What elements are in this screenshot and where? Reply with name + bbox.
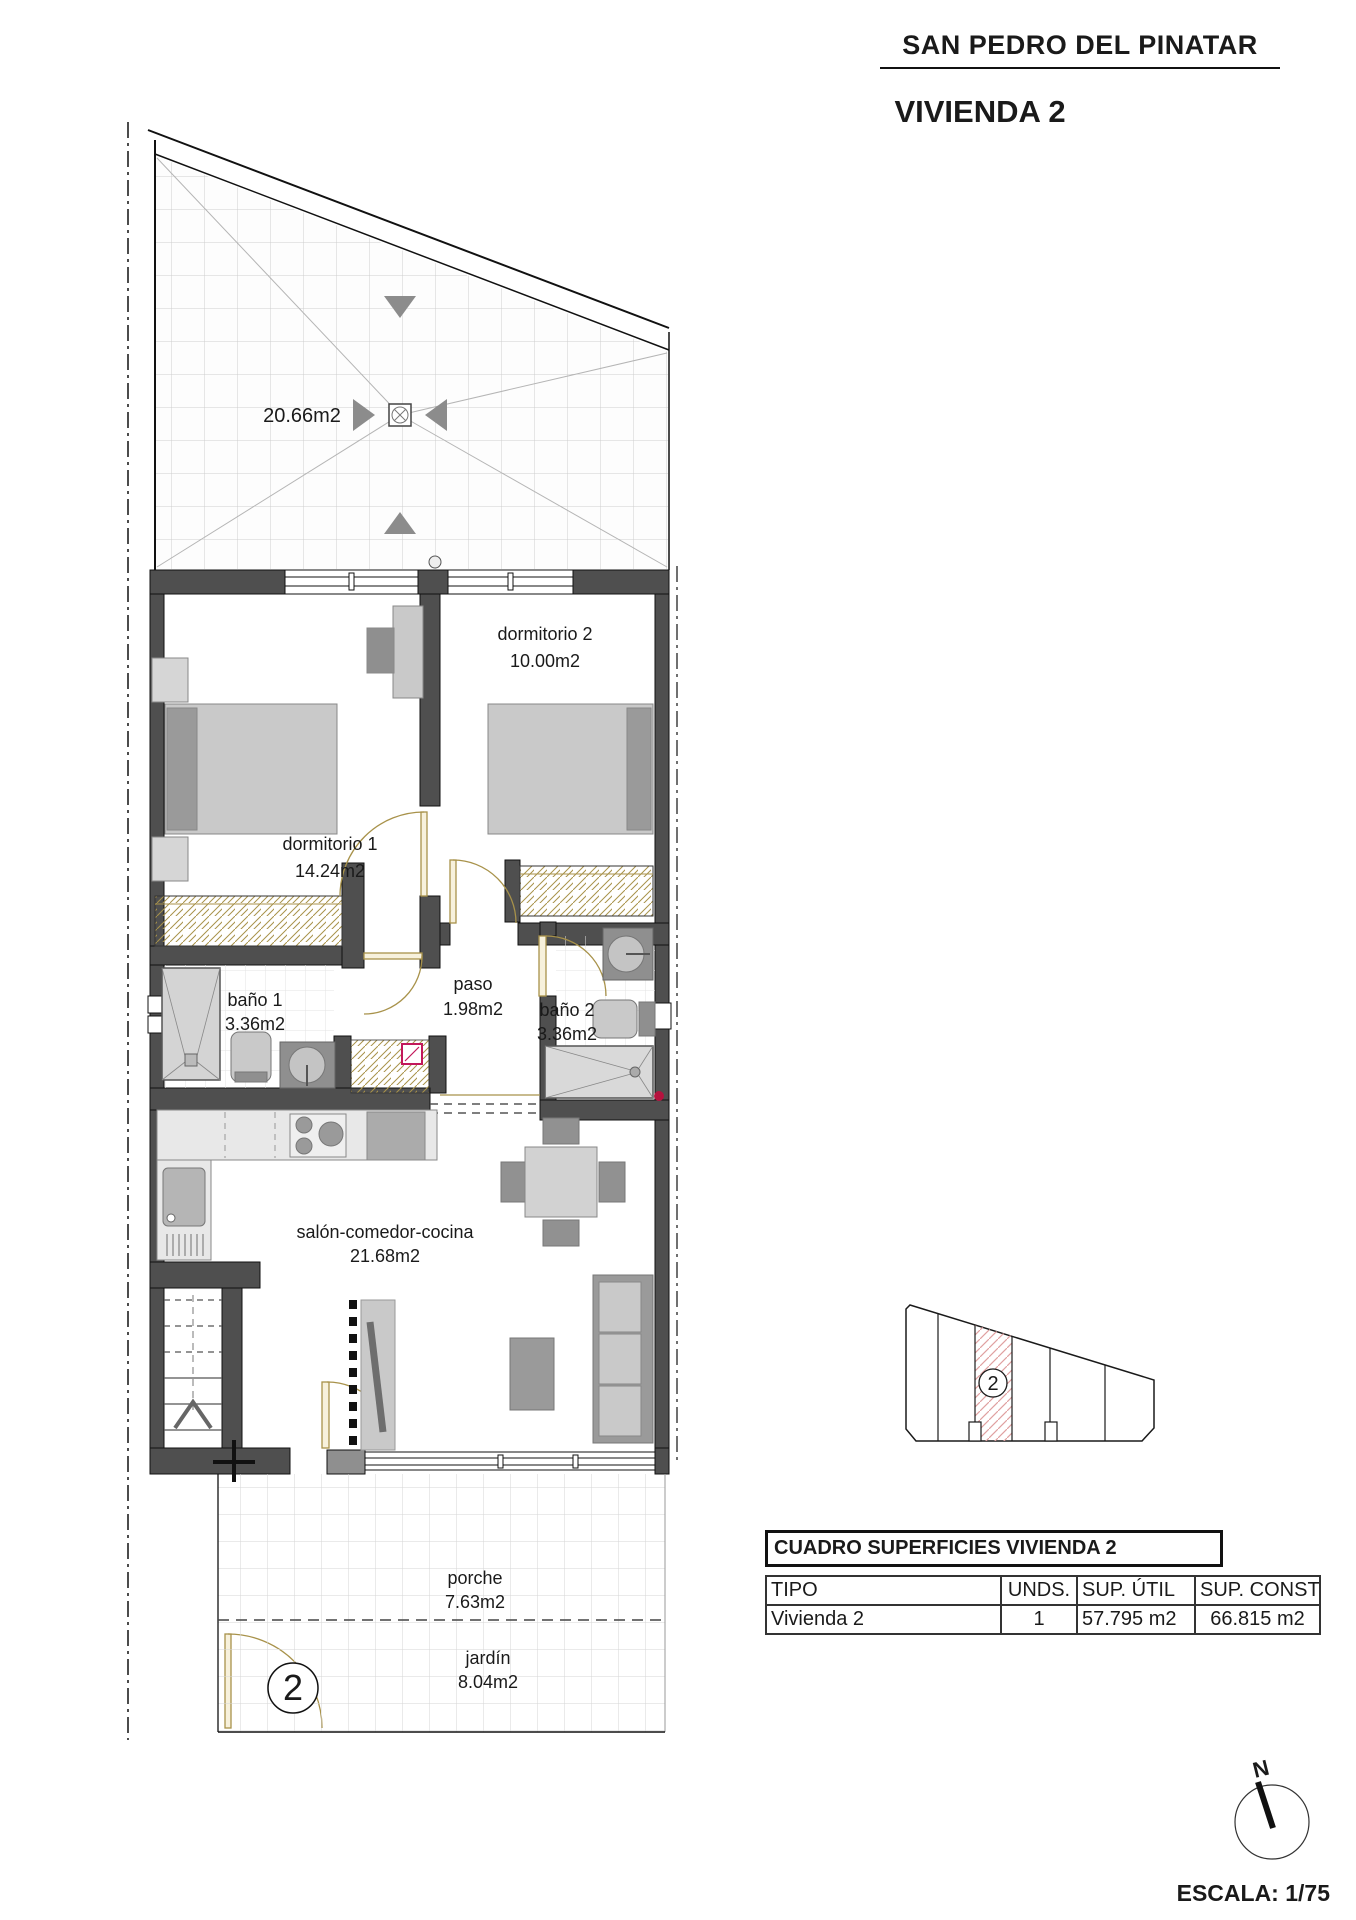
surfaces-table-title: CUADRO SUPERFICIES VIVIENDA 2 xyxy=(765,1530,1223,1567)
dorm2-furniture xyxy=(488,704,653,834)
room-label-bano2: baño 2 xyxy=(539,1000,594,1020)
col-unds: UNDS. xyxy=(1001,1576,1077,1605)
cell-sup-util: 57.795 m2 xyxy=(1077,1605,1195,1634)
room-label-salon: salón-comedor-cocina xyxy=(296,1222,474,1242)
room-label-paso: paso xyxy=(453,974,492,994)
room-label-bano1: baño 1 xyxy=(227,990,282,1010)
room-label-dorm1: dormitorio 1 xyxy=(282,834,377,854)
cell-unds: 1 xyxy=(1001,1605,1077,1634)
site-key-plan: 2 xyxy=(890,1285,1220,1455)
surfaces-table: CUADRO SUPERFICIES VIVIENDA 2 TIPO UNDS.… xyxy=(765,1530,1310,1635)
floorplan-sheet: SAN PEDRO DEL PINATAR VIVIENDA 2 xyxy=(0,0,1356,1920)
col-tipo: TIPO xyxy=(766,1576,1001,1605)
floor-plan: 20.66m2 xyxy=(105,110,685,1760)
table-row: Vivienda 2 1 57.795 m2 66.815 m2 xyxy=(766,1605,1320,1634)
room-label-jardin: jardín xyxy=(464,1648,510,1668)
roof-terrace: 20.66m2 xyxy=(148,130,669,570)
project-title: SAN PEDRO DEL PINATAR xyxy=(880,30,1280,69)
room-area-dorm1: 14.24m2 xyxy=(295,861,365,881)
north-compass-icon: N xyxy=(1225,1758,1325,1868)
unit-title: VIVIENDA 2 xyxy=(820,94,1140,130)
site-unit-marker: 2 xyxy=(987,1373,998,1395)
table-header-row: TIPO UNDS. SUP. ÚTIL SUP. CONST. xyxy=(766,1576,1320,1605)
room-label-dorm2: dormitorio 2 xyxy=(497,624,592,644)
riser-mark-icon xyxy=(654,1091,664,1101)
room-area-jardin: 8.04m2 xyxy=(458,1672,518,1692)
living-furniture xyxy=(353,1118,653,1450)
room-area-bano1: 3.36m2 xyxy=(225,1014,285,1034)
room-area-porche: 7.63m2 xyxy=(445,1592,505,1612)
unit-marker: 2 xyxy=(283,1667,303,1708)
room-area-bano2: 3.36m2 xyxy=(537,1024,597,1044)
col-sup-util: SUP. ÚTIL xyxy=(1077,1576,1195,1605)
room-area-paso: 1.98m2 xyxy=(443,999,503,1019)
compass-north-label: N xyxy=(1250,1758,1271,1783)
kitchen-beam-line xyxy=(430,1104,540,1113)
col-sup-const: SUP. CONST. xyxy=(1195,1576,1320,1605)
room-area-salon: 21.68m2 xyxy=(350,1246,420,1266)
cell-tipo: Vivienda 2 xyxy=(766,1605,1001,1634)
room-area-dorm2: 10.00m2 xyxy=(510,651,580,671)
outdoor-areas: 2 xyxy=(218,1474,665,1732)
room-label-solarium: 20.66m2 xyxy=(263,405,341,427)
cell-sup-const: 66.815 m2 xyxy=(1195,1605,1320,1634)
room-label-porche: porche xyxy=(447,1568,502,1588)
scale-label: ESCALA: 1/75 xyxy=(1100,1880,1330,1907)
